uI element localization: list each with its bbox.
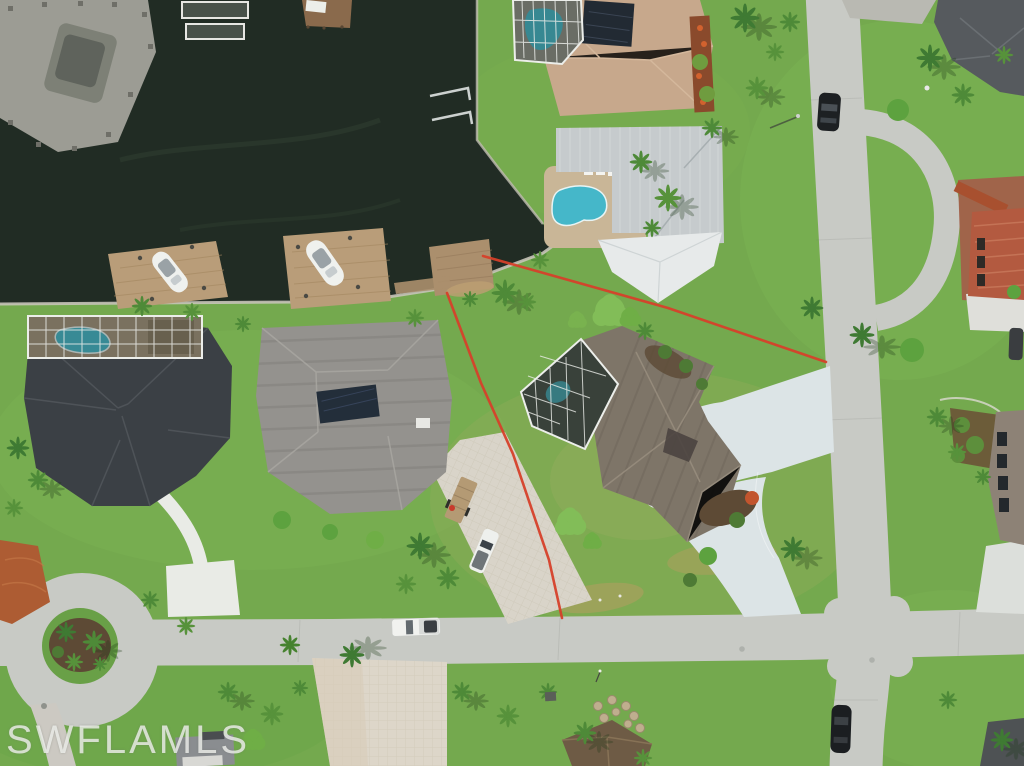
bush (692, 54, 708, 70)
bush (887, 99, 909, 121)
survey-stake (599, 599, 602, 602)
palm-tree (801, 297, 824, 320)
palm-tree (141, 591, 160, 610)
dock-with-boat-2 (283, 228, 391, 309)
palm-tree (83, 631, 106, 654)
wood-dock-north (302, 0, 352, 30)
mailbox (599, 670, 602, 673)
palm-tree (452, 682, 473, 703)
orange-bush (745, 491, 759, 505)
palm-tree (518, 293, 537, 312)
palm-tree (218, 682, 239, 703)
manhole-cover (739, 646, 745, 652)
palm-tree (437, 567, 460, 590)
palm-tree (407, 533, 434, 560)
palm-tree (927, 407, 948, 428)
bush (1007, 285, 1021, 299)
palm-tree (93, 657, 108, 672)
bush (699, 547, 717, 565)
bush (699, 86, 715, 102)
palm-tree (643, 219, 662, 238)
palm-tree (492, 280, 519, 307)
palm-tree (406, 309, 425, 328)
palm-tree (655, 185, 682, 212)
palm-tree (702, 118, 723, 139)
palm-tree (850, 323, 875, 348)
palm-tree (132, 296, 153, 317)
bush (366, 531, 384, 549)
palm-tree (56, 622, 77, 643)
palm-tree (948, 443, 967, 462)
palm-tree (995, 46, 1014, 65)
bush (322, 524, 338, 540)
dark-car-right-edge (1008, 328, 1023, 360)
mls-watermark: SWFLAMLS (6, 720, 250, 760)
palm-tree (574, 722, 597, 745)
bush (683, 573, 697, 587)
palm-tree (991, 729, 1014, 752)
palm-tree (781, 537, 806, 562)
palm-tree (731, 4, 760, 33)
survey-stake (619, 595, 622, 598)
utility-box (545, 692, 556, 702)
palm-tree (975, 469, 992, 486)
white-pickup-street (392, 618, 441, 637)
palm-tree (340, 643, 365, 668)
palm-tree (292, 680, 309, 697)
palm-tree (636, 322, 655, 341)
palm-tree (497, 705, 520, 728)
screened-pool-cage-d (28, 316, 202, 358)
palm-tree (630, 151, 653, 174)
manhole-cover (869, 657, 875, 663)
palm-tree (462, 291, 479, 308)
palm-tree (766, 43, 785, 62)
palm-tree (746, 77, 769, 100)
bush (273, 511, 291, 529)
bush (696, 378, 708, 390)
basketball-hoop (925, 86, 930, 91)
bush (966, 436, 984, 454)
bush (729, 512, 745, 528)
landscape-rock (41, 703, 47, 709)
palm-tree (939, 691, 958, 710)
palm-tree (396, 574, 417, 595)
bush (679, 359, 693, 373)
palm-tree (5, 499, 24, 518)
aerial-photo-canvas (0, 0, 1024, 766)
palm-tree (28, 470, 49, 491)
bush (52, 646, 64, 658)
palm-tree (780, 12, 801, 33)
palm-tree (952, 84, 975, 107)
palm-tree (7, 437, 30, 460)
red-cooler (449, 505, 455, 511)
palm-tree (531, 251, 550, 270)
palm-tree (183, 303, 202, 322)
black-car-north (817, 92, 842, 131)
palm-tree (235, 316, 252, 333)
west-windows (977, 238, 985, 286)
palm-tree (65, 653, 84, 672)
moored-boat-bow (305, 0, 326, 13)
bush (658, 345, 672, 359)
skylight (416, 418, 430, 428)
bush (900, 338, 924, 362)
streetlight (796, 114, 800, 118)
palm-tree (280, 635, 301, 656)
black-car-south (830, 705, 852, 754)
palm-tree (261, 703, 284, 726)
palm-tree (177, 617, 196, 636)
palm-tree (917, 45, 944, 72)
aerial-photo: SWFLAMLS (0, 0, 1024, 766)
drive-apron-dark-house (166, 560, 240, 617)
